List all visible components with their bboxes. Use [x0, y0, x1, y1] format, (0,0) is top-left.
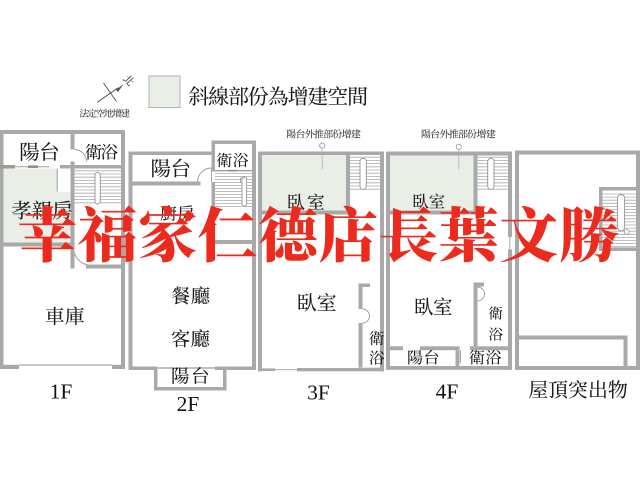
svg-text:3F: 3F [307, 381, 330, 405]
svg-text:4F: 4F [436, 380, 459, 404]
svg-text:2F: 2F [177, 392, 200, 416]
svg-text:1F: 1F [50, 380, 73, 404]
